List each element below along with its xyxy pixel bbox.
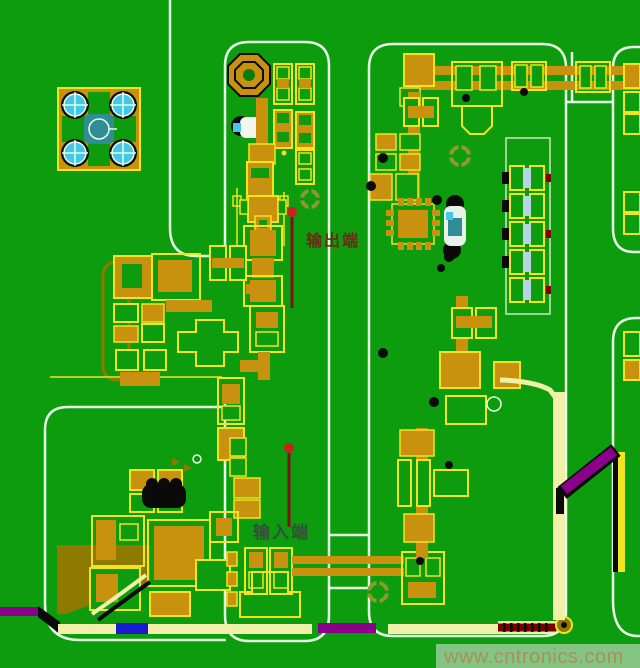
watermark-text: www.cntronics.com (443, 646, 624, 668)
pcb-canvas[interactable]: 输出端 输入端 www.cntronics.com (0, 0, 640, 668)
inductor-black (142, 478, 186, 508)
input-port-label: 输入端 (253, 522, 310, 542)
red-hatched-trace (498, 621, 556, 634)
mounting-pad-4hole[interactable] (58, 88, 140, 170)
output-port-label: 输出端 (306, 231, 360, 250)
octagon-pad[interactable] (228, 54, 270, 96)
blue-trace-segment (116, 623, 148, 634)
watermark: www.cntronics.com (436, 644, 640, 668)
magenta-trace-left (0, 607, 40, 616)
pcb-layout-view: 输出端 输入端 www.cntronics.com (0, 0, 640, 668)
magenta-trace-mid (318, 623, 376, 633)
pale-rail-right (388, 624, 498, 634)
pale-rail-left (58, 624, 312, 634)
